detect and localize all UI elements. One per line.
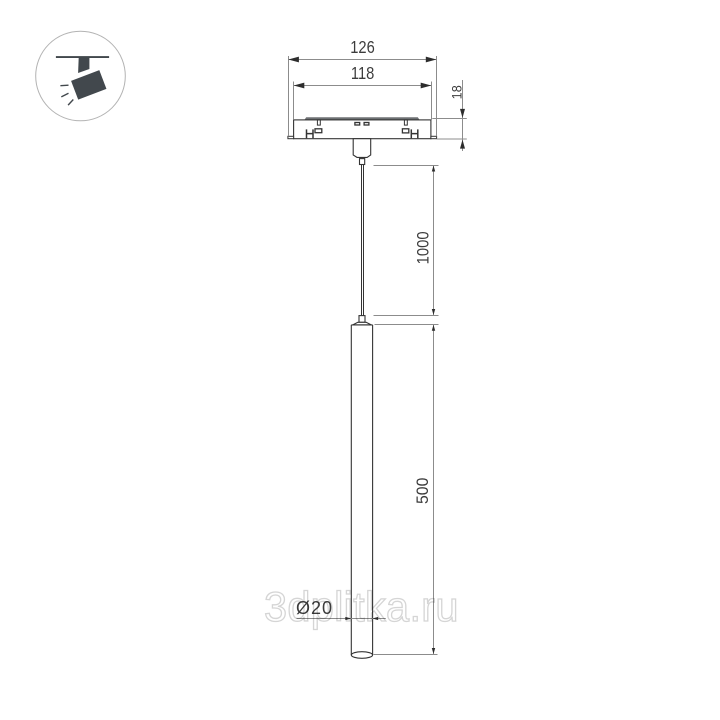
- svg-text:18: 18: [449, 85, 464, 99]
- svg-text:1000: 1000: [415, 231, 433, 264]
- svg-text:3dplitka.ru: 3dplitka.ru: [264, 583, 459, 630]
- svg-text:500: 500: [413, 478, 432, 504]
- svg-text:126: 126: [350, 38, 375, 57]
- svg-text:118: 118: [351, 64, 374, 83]
